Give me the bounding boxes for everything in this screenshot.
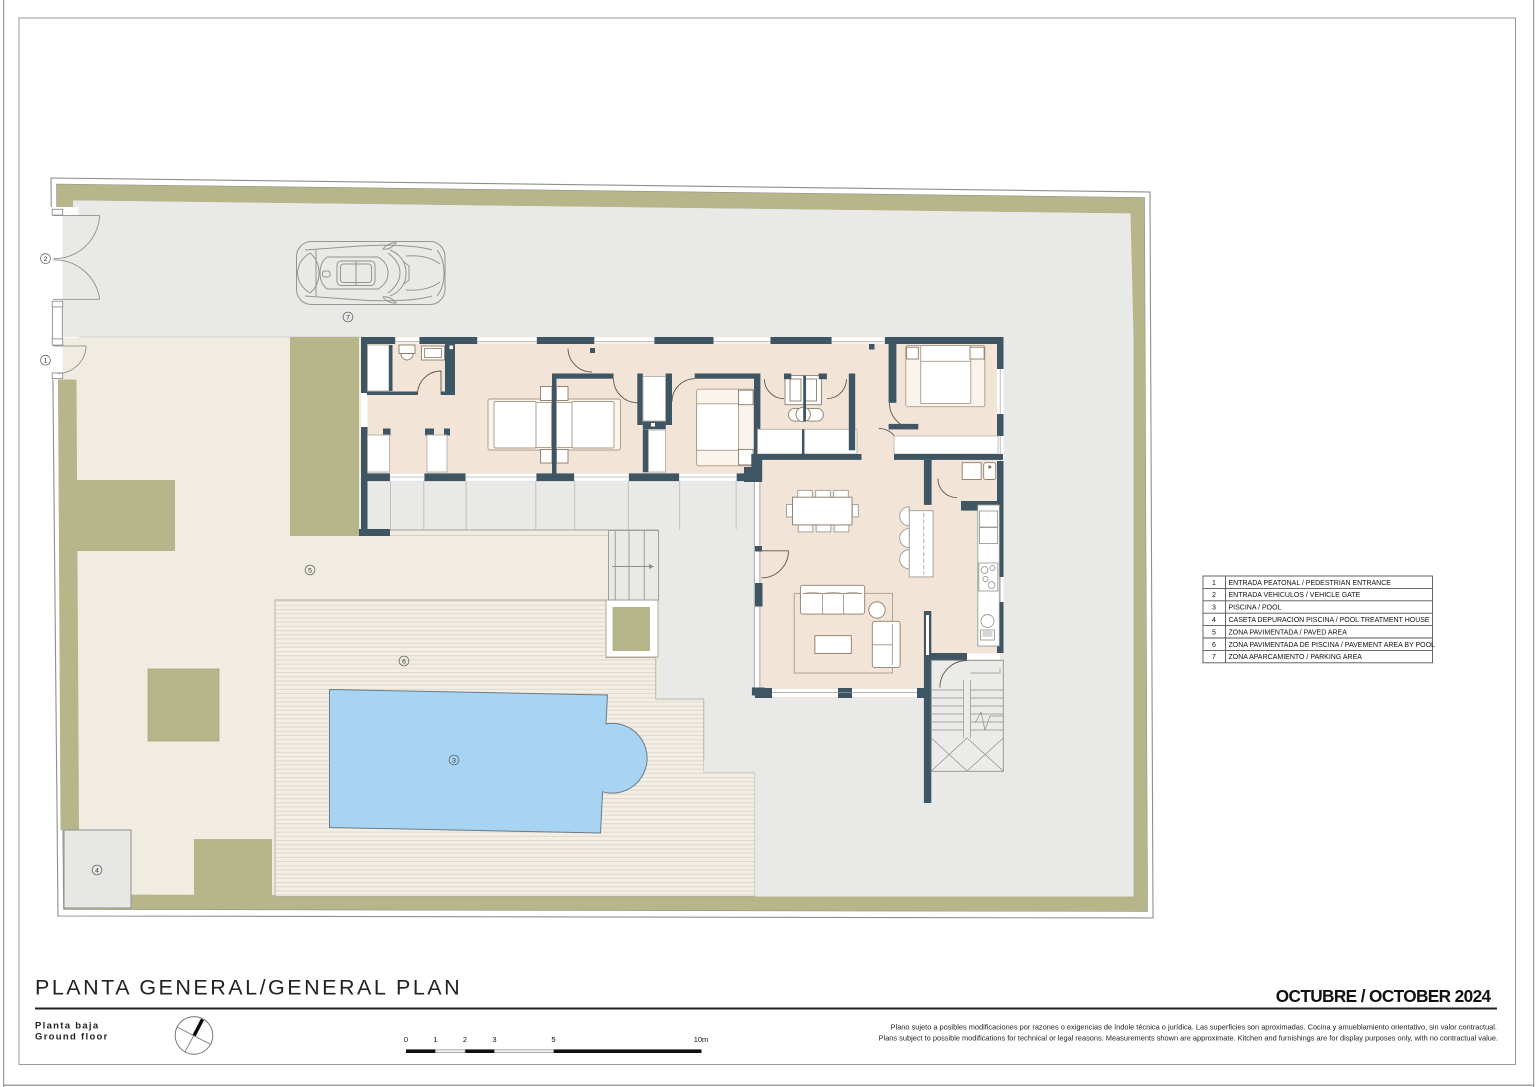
svg-text:OCTUBRE / OCTOBER 2024: OCTUBRE / OCTOBER 2024 — [1276, 986, 1492, 1006]
svg-text:Ground floor: Ground floor — [35, 1032, 109, 1043]
svg-text:3: 3 — [452, 757, 456, 764]
svg-text:7: 7 — [1212, 654, 1216, 661]
svg-text:PLANTA GENERAL/GENERAL PLAN: PLANTA GENERAL/GENERAL PLAN — [35, 976, 462, 1000]
svg-text:4: 4 — [1212, 617, 1216, 624]
svg-text:1: 1 — [433, 1035, 437, 1044]
svg-text:ZONA APARCAMIENTO / PARKING AR: ZONA APARCAMIENTO / PARKING AREA — [1229, 654, 1363, 661]
svg-text:ZONA PAVIMENTADA DE PISCINA /: ZONA PAVIMENTADA DE PISCINA / PAVEMENT A… — [1229, 642, 1436, 649]
svg-text:Planta baja: Planta baja — [35, 1021, 99, 1032]
svg-text:2: 2 — [1212, 592, 1216, 599]
svg-text:4: 4 — [95, 867, 99, 874]
svg-text:5: 5 — [551, 1035, 555, 1044]
svg-text:PISCINA / POOL: PISCINA / POOL — [1229, 605, 1282, 612]
svg-text:Plans subject to possible modi: Plans subject to possible modifications … — [879, 1033, 1498, 1042]
svg-text:7: 7 — [346, 314, 350, 321]
svg-text:5: 5 — [308, 567, 312, 574]
svg-text:6: 6 — [402, 658, 406, 665]
svg-text:ZONA PAVIMENTADA / PAVED AREA: ZONA PAVIMENTADA / PAVED AREA — [1229, 629, 1348, 636]
svg-text:6: 6 — [1212, 642, 1216, 649]
svg-text:ENTRADA VEHICULOS / VEHICLE GA: ENTRADA VEHICULOS / VEHICLE GATE — [1229, 592, 1361, 599]
svg-text:ENTRADA PEATONAL / PEDESTRIAN: ENTRADA PEATONAL / PEDESTRIAN ENTRANCE — [1229, 580, 1392, 587]
svg-text:2: 2 — [44, 256, 48, 263]
svg-text:0: 0 — [404, 1035, 408, 1044]
svg-text:Plano sujeto a posibles modifi: Plano sujeto a posibles modificaciones p… — [891, 1022, 1497, 1031]
svg-text:5: 5 — [1212, 629, 1216, 636]
svg-text:3: 3 — [492, 1035, 496, 1044]
svg-text:1: 1 — [1212, 580, 1216, 587]
svg-text:3: 3 — [1212, 605, 1216, 612]
svg-text:CASETA DEPURACION PISCINA / PO: CASETA DEPURACION PISCINA / POOL TREATME… — [1229, 617, 1430, 624]
svg-text:2: 2 — [463, 1035, 467, 1044]
svg-text:1: 1 — [44, 358, 48, 365]
svg-text:10m: 10m — [694, 1035, 709, 1044]
